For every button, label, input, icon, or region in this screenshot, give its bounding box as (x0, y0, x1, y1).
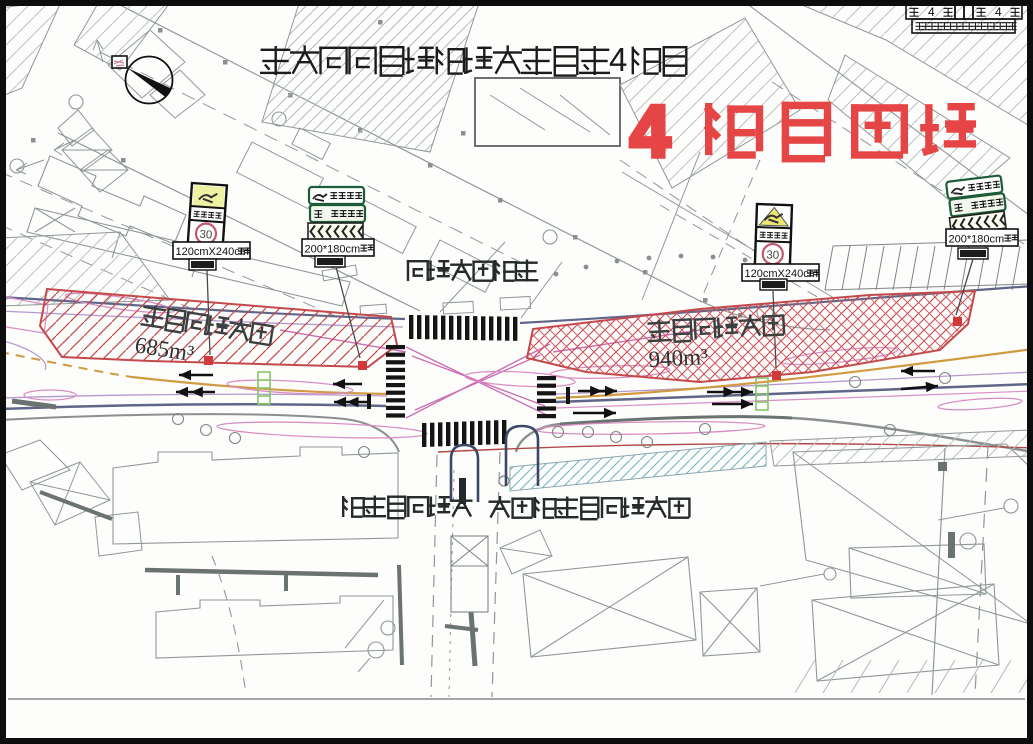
svg-text:30: 30 (199, 229, 213, 242)
svg-text:4: 4 (609, 41, 627, 78)
svg-text:4: 4 (995, 5, 1002, 19)
svg-text:200*180cm: 200*180cm (949, 234, 1005, 246)
svg-text:120cmX240cm: 120cmX240cm (176, 246, 249, 258)
svg-text:120cmX240cm: 120cmX240cm (745, 268, 818, 280)
svg-text:4: 4 (630, 92, 670, 172)
svg-text:30: 30 (766, 249, 779, 261)
svg-text:200*180cm: 200*180cm (305, 244, 361, 256)
svg-text:940m³: 940m³ (648, 344, 709, 372)
svg-text:4: 4 (928, 5, 935, 19)
